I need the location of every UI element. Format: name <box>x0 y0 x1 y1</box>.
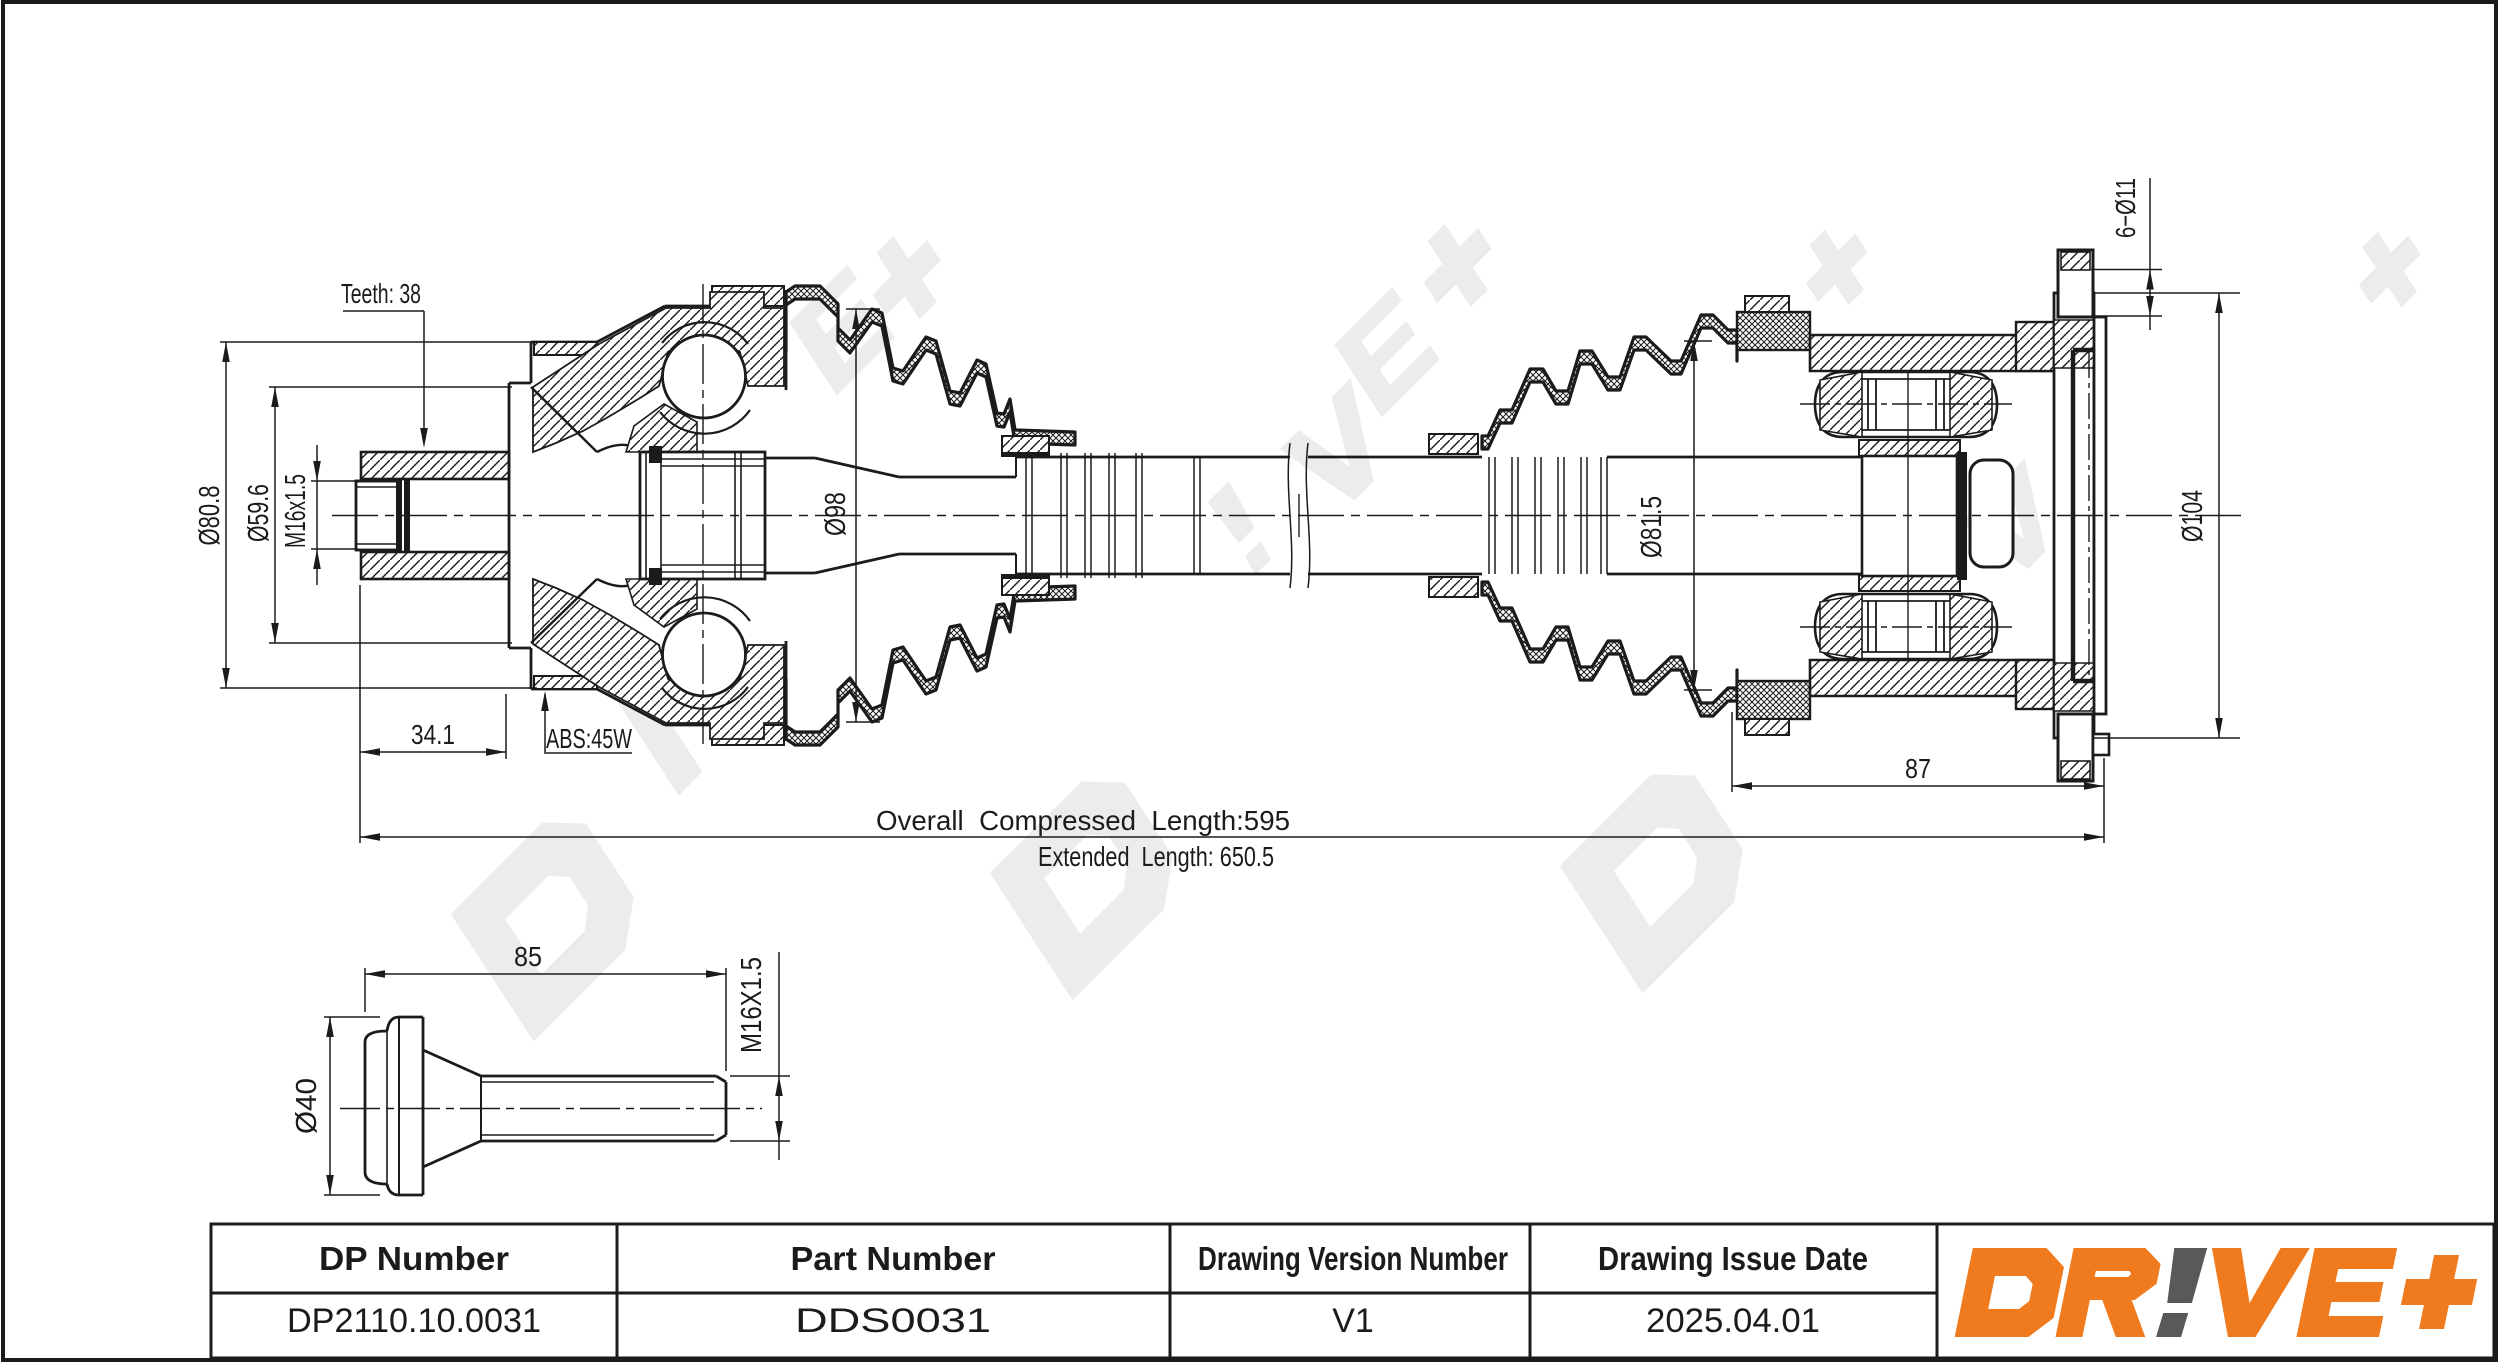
svg-text:Ø80.8: Ø80.8 <box>194 486 226 546</box>
svg-text:34.1: 34.1 <box>411 719 455 750</box>
svg-text:87: 87 <box>1905 753 1931 784</box>
svg-text:Ø81.5: Ø81.5 <box>1636 496 1668 558</box>
svg-text:Drawing Version Number: Drawing Version Number <box>1198 1240 1508 1277</box>
svg-text:ABS:45W: ABS:45W <box>546 723 632 754</box>
svg-text:6−Ø11: 6−Ø11 <box>2110 178 2141 238</box>
svg-text:Ø104: Ø104 <box>2177 490 2209 542</box>
svg-text:DP2110.10.0031: DP2110.10.0031 <box>287 1302 541 1340</box>
svg-text:Teeth: 38: Teeth: 38 <box>341 278 421 309</box>
svg-text:V1: V1 <box>1332 1302 1374 1340</box>
svg-text:Part Number: Part Number <box>791 1240 996 1277</box>
svg-text:Ø40: Ø40 <box>291 1078 323 1134</box>
svg-text:Ø98: Ø98 <box>820 492 852 536</box>
svg-text:Ø59.6: Ø59.6 <box>243 484 275 542</box>
svg-text:2025.04.01: 2025.04.01 <box>1646 1302 1820 1340</box>
svg-text:Drawing Issue Date: Drawing Issue Date <box>1598 1240 1868 1277</box>
svg-text:85: 85 <box>514 941 542 972</box>
svg-text:Extended Length: 650.5: Extended Length: 650.5 <box>1038 841 1274 872</box>
svg-text:M16X1.5: M16X1.5 <box>736 957 768 1053</box>
svg-text:DP Number: DP Number <box>319 1240 509 1277</box>
svg-text:Overall Compressed Length:59: Overall Compressed Length:595 <box>876 805 1290 836</box>
svg-text:DDS0031: DDS0031 <box>795 1302 991 1340</box>
svg-text:M16x1.5: M16x1.5 <box>280 474 312 548</box>
